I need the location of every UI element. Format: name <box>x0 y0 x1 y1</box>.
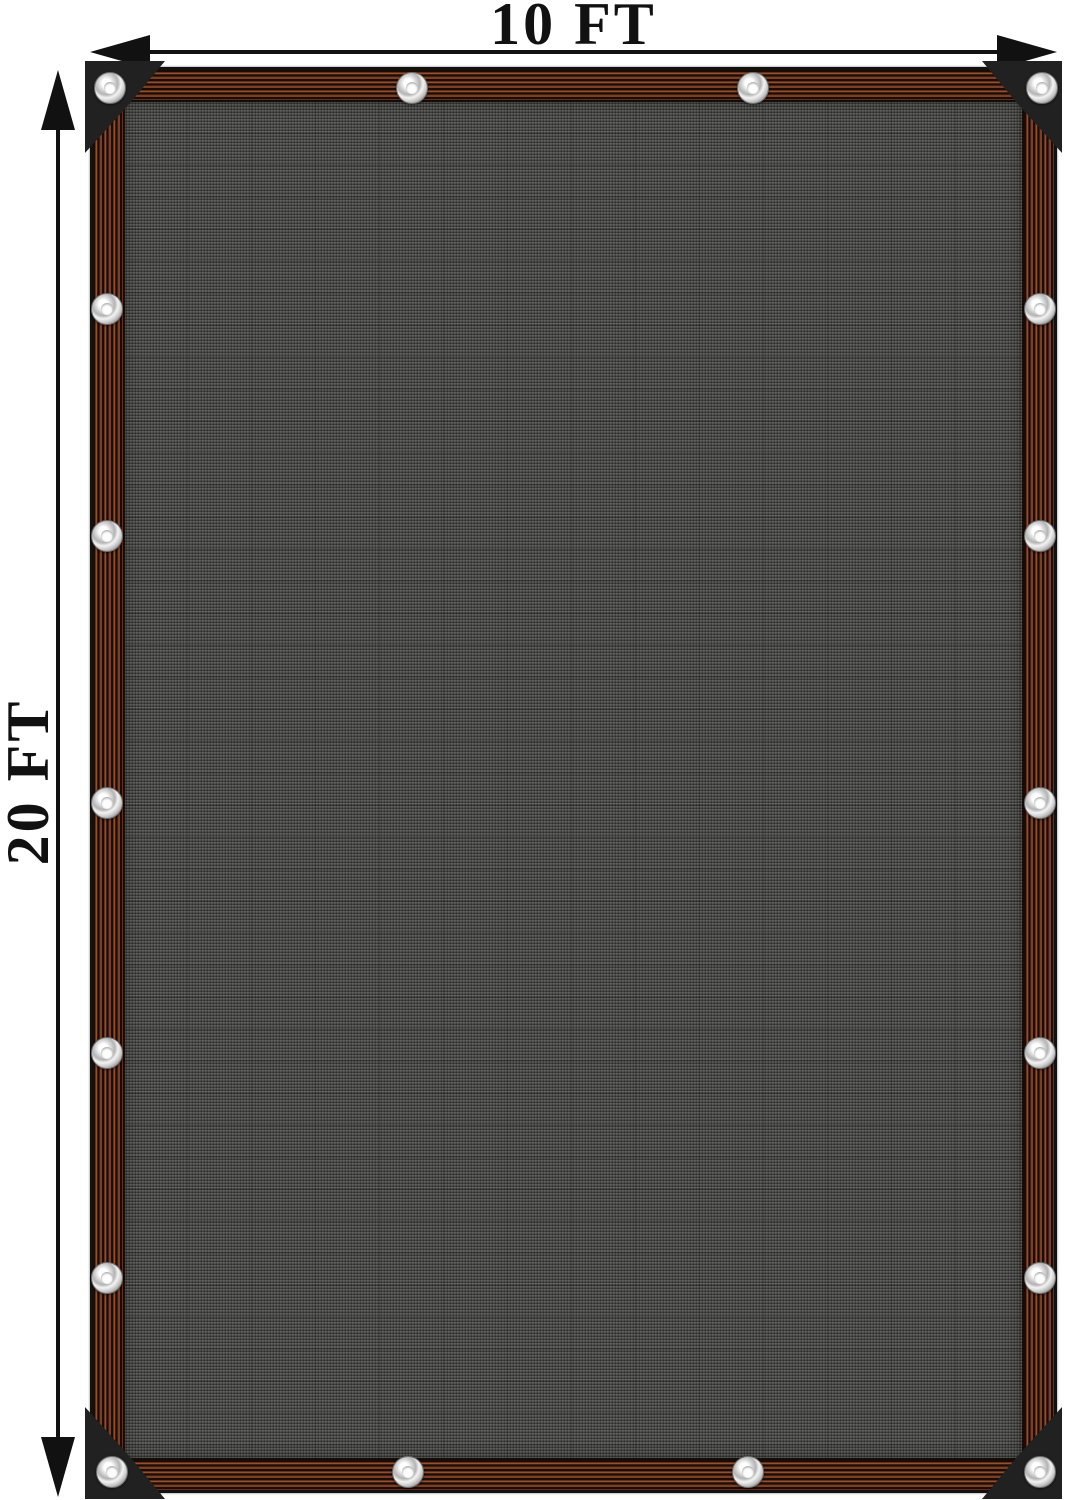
grommet-eyelet <box>1024 787 1056 819</box>
grommet-eyelet <box>91 787 123 819</box>
grommet-eyelet <box>96 1456 128 1488</box>
grommet-eyelet <box>91 1262 123 1294</box>
arrow-line <box>56 78 60 1489</box>
grommet-eyelet <box>1024 1037 1056 1069</box>
arrow-line <box>98 50 1049 54</box>
grommet-eyelet <box>392 1456 424 1488</box>
grommet-layer <box>90 67 1057 1493</box>
grommet-eyelet <box>737 72 769 104</box>
grommet-eyelet <box>1024 520 1056 552</box>
grommet-eyelet <box>1024 1262 1056 1294</box>
shade-tarp <box>90 67 1057 1493</box>
product-dimension-diagram: 10 FT 20 FT <box>0 0 1066 1500</box>
grommet-eyelet <box>91 520 123 552</box>
grommet-eyelet <box>1024 1456 1056 1488</box>
grommet-eyelet <box>91 293 123 325</box>
grommet-eyelet <box>94 72 126 104</box>
grommet-eyelet <box>91 1037 123 1069</box>
arrowhead-down-icon <box>41 1437 75 1497</box>
grommet-eyelet <box>732 1456 764 1488</box>
width-dimension-label: 10 FT <box>90 0 1057 50</box>
grommet-eyelet <box>396 72 428 104</box>
height-dimension-label: 20 FT <box>2 699 54 866</box>
grommet-eyelet <box>1026 72 1058 104</box>
grommet-eyelet <box>1024 293 1056 325</box>
